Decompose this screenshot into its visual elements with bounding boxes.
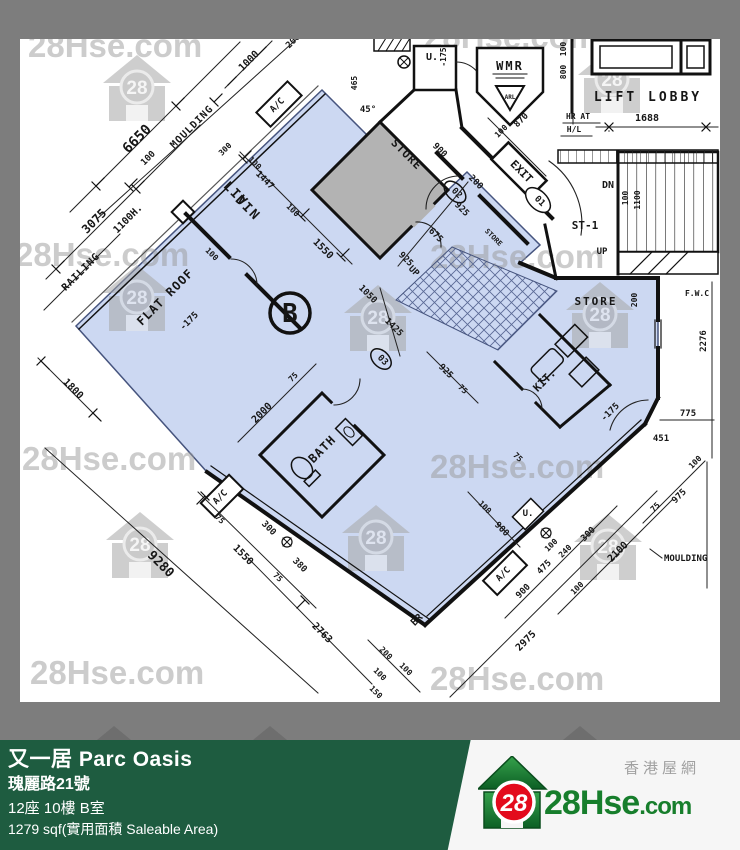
plan-label: HR AT (566, 112, 590, 121)
plan-area: 28Hse.com28Hse.com28Hse.com28Hse.com28Hs… (15, 18, 720, 702)
info-bar: 28 28Hse.com 香港屋網 又一居 Parc Oasis 瑰麗路21號 … (0, 740, 740, 850)
plan-label: 451 (653, 434, 669, 444)
plan-label: H/L (567, 125, 582, 134)
logo-suffix: .com (639, 793, 691, 820)
plan-label: -175 (439, 47, 448, 66)
address: 瑰麗路21號 (8, 770, 90, 794)
plan-label: 100 (621, 191, 630, 206)
plan-label: MOULDING (664, 554, 707, 564)
plan-label: 1688 (635, 113, 659, 124)
plan-label: ARL (505, 94, 516, 101)
badge-number: 28 (500, 790, 528, 817)
area-info: 1279 sqf(實用面積 Saleable Area) (8, 819, 218, 839)
plan-label: 1100 (633, 190, 642, 209)
plan-label: 465 (350, 76, 359, 91)
house-logo-icon: 28 (478, 756, 548, 834)
watermark-text: 28Hse.com (15, 236, 189, 273)
screenshot-root: 28 28Hse.com28Hse.com28Hse.com28Hse.com2… (0, 0, 740, 850)
plan-label: 2276 (699, 330, 709, 352)
plan-label: DN (602, 180, 614, 191)
plan-label: STORE (574, 295, 617, 308)
plan-label: 775 (680, 409, 696, 419)
plan-label: U. (523, 509, 534, 519)
plan-label: 800 (559, 65, 568, 80)
site-logo-text: 28Hse.com (544, 784, 691, 823)
site-name-chinese: 香港屋網 (624, 757, 700, 778)
plan-label: ST-1 (572, 219, 599, 232)
plan-label: UP (597, 247, 608, 257)
plan-label: F.W.C (685, 289, 709, 298)
plan-label: U. (426, 52, 438, 63)
site-logo[interactable]: 28 28Hse.com 香港屋網 (478, 756, 733, 834)
watermark-text: 28Hse.com (22, 440, 196, 477)
unit-info: 12座 10樓 B室 (8, 797, 105, 818)
plan-label: 45° (360, 105, 376, 115)
floor-plan-image: 28 28Hse.com28Hse.com28Hse.com28Hse.com2… (0, 0, 740, 850)
watermark-text: 28Hse.com (30, 654, 204, 691)
plan-label: LIFT LOBBY (594, 90, 702, 105)
building-name: 又一居 Parc Oasis (8, 743, 192, 773)
plan-label: WMR (496, 59, 524, 73)
plan-label: 100 (559, 42, 568, 57)
plan-label: 200 (630, 293, 639, 308)
logo-main: 28Hse (544, 784, 639, 822)
plan-label: B (282, 299, 298, 329)
